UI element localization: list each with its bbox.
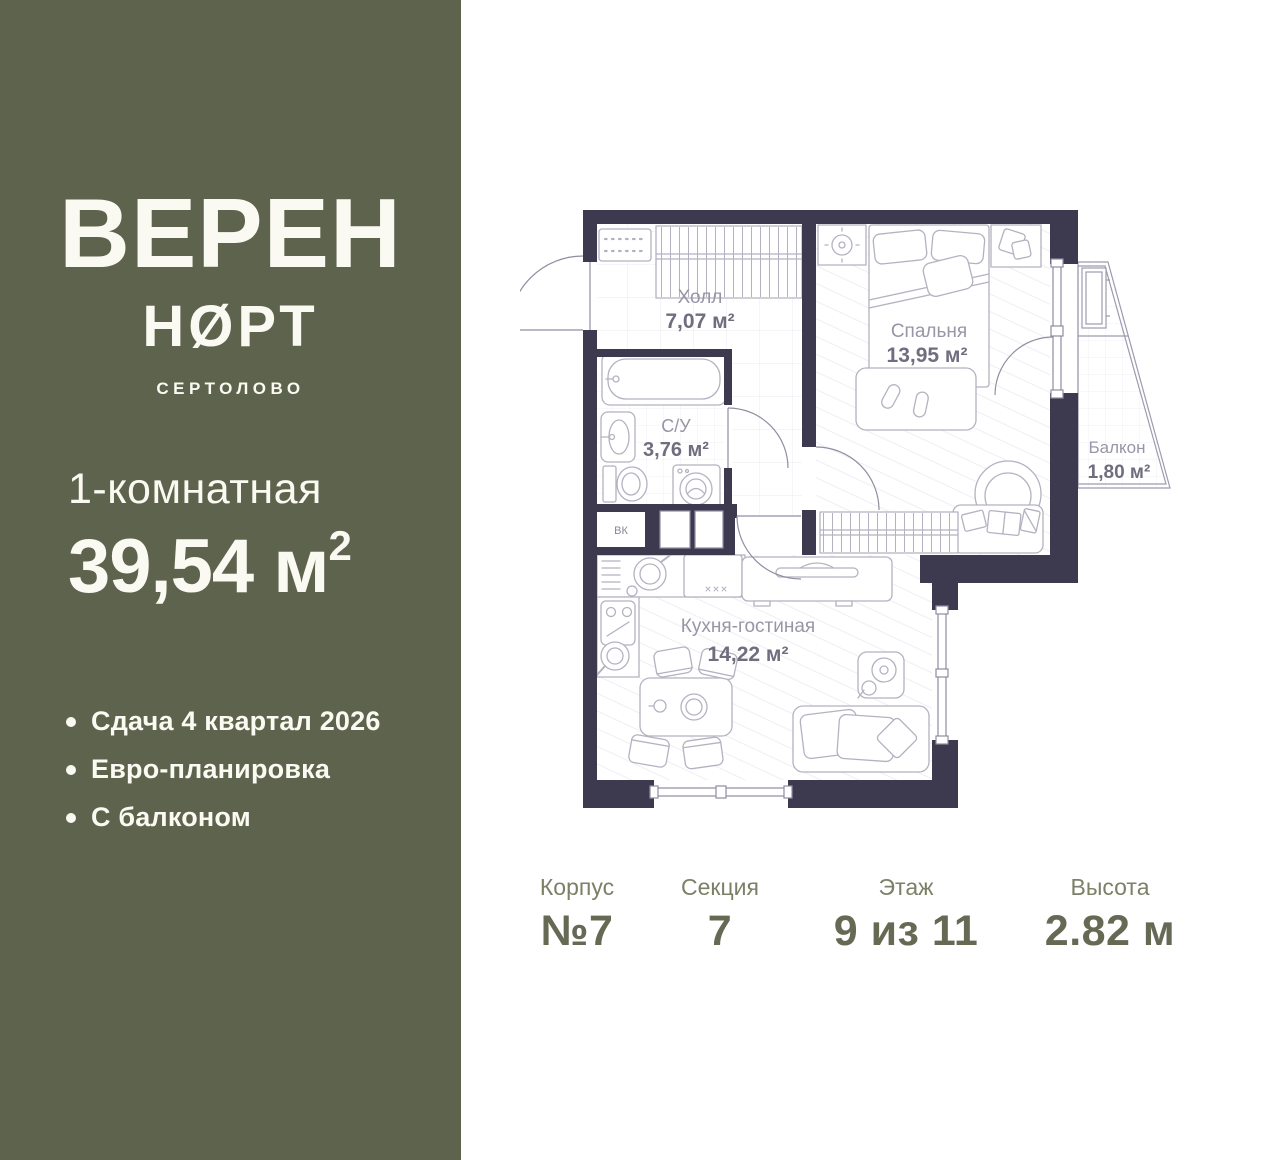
feature-label: Сдача 4 квартал 2026: [91, 706, 381, 737]
kitchen-area: 14,22 м²: [708, 643, 789, 666]
entrance-door: [520, 256, 583, 330]
balcony-area: 1,80 м²: [1088, 462, 1151, 483]
feature-item-delivery: Сдача 4 квартал 2026: [66, 706, 381, 737]
stat-building-label: Корпус: [540, 876, 614, 899]
unit-area: 39,54 м2: [68, 529, 352, 605]
dining-table: [640, 678, 732, 736]
stat-height-value: 2.82 м: [1045, 910, 1175, 953]
fridge: [684, 555, 742, 597]
side-table: [858, 652, 904, 698]
hall-label: Холл: [678, 287, 723, 308]
unit-summary: 1-комнатная 39,54 м2: [68, 468, 352, 605]
wardrobe: [820, 512, 958, 553]
balcony-label: Балкон: [1088, 438, 1145, 457]
rug: [856, 368, 976, 430]
dining-chair: [653, 646, 693, 678]
bathroom-sink: [601, 412, 635, 462]
unit-area-value: 39,54 м: [68, 524, 329, 609]
bullet-icon: [66, 765, 76, 775]
unit-area-superscript: 2: [329, 522, 352, 569]
stat-building-value: №7: [540, 910, 614, 953]
stat-floor-label: Этаж: [834, 876, 979, 899]
bullet-icon: [66, 813, 76, 823]
stat-section: Секция 7: [681, 876, 759, 953]
unit-type: 1-комнатная: [68, 468, 352, 511]
floor-plan: Холл 7,07 м² С/У 3,76 м² ВК Спальня 13,9…: [520, 190, 1200, 840]
toilet: [603, 466, 647, 502]
stat-section-label: Секция: [681, 876, 759, 899]
feature-list: Сдача 4 квартал 2026 Евро-планировка С б…: [66, 706, 381, 850]
bathroom-area: 3,76 м²: [643, 439, 709, 461]
hall-area: 7,07 м²: [665, 310, 734, 333]
brand-name-line2: НØРТ: [0, 298, 461, 356]
desk: [953, 505, 1043, 553]
stat-height: Высота 2.82 м: [1045, 876, 1175, 953]
bedroom-label: Спальня: [891, 321, 967, 342]
stat-floor: Этаж 9 из 11: [834, 876, 979, 953]
brand-logo: ВЕРЕН НØРТ СЕРТОЛОВО: [0, 184, 461, 397]
dining-chair: [682, 736, 724, 769]
doormat: [599, 229, 651, 261]
feature-label: Евро-планировка: [91, 754, 330, 785]
kitchen-side-window: [936, 606, 948, 744]
tv-stand: [742, 557, 892, 606]
stat-floor-value: 9 из 11: [834, 910, 979, 953]
nightstand-right: [991, 225, 1041, 267]
dining-chair: [628, 734, 670, 768]
sofa: [793, 706, 929, 772]
feature-label: С балконом: [91, 802, 251, 833]
brand-location: СЕРТОЛОВО: [0, 380, 461, 397]
brand-sidebar: ВЕРЕН НØРТ СЕРТОЛОВО 1-комнатная 39,54 м…: [0, 0, 461, 1160]
bedroom-area: 13,95 м²: [887, 344, 968, 367]
bathroom-label: С/У: [661, 416, 691, 436]
bullet-icon: [66, 717, 76, 727]
feature-item-balcony: С балконом: [66, 802, 381, 833]
nightstand-left: [818, 225, 866, 265]
kitchen-counter-left: [596, 597, 639, 677]
kitchen-window: [650, 786, 792, 798]
feature-item-layout: Евро-планировка: [66, 754, 381, 785]
bathtub: [602, 353, 726, 405]
brand-name-line1: ВЕРЕН: [0, 184, 461, 282]
stat-section-value: 7: [681, 910, 759, 953]
closet-label: ВК: [614, 525, 628, 537]
stat-height-label: Высота: [1045, 876, 1175, 899]
kitchen-label: Кухня-гостиная: [681, 616, 815, 637]
stat-building: Корпус №7: [540, 876, 614, 953]
